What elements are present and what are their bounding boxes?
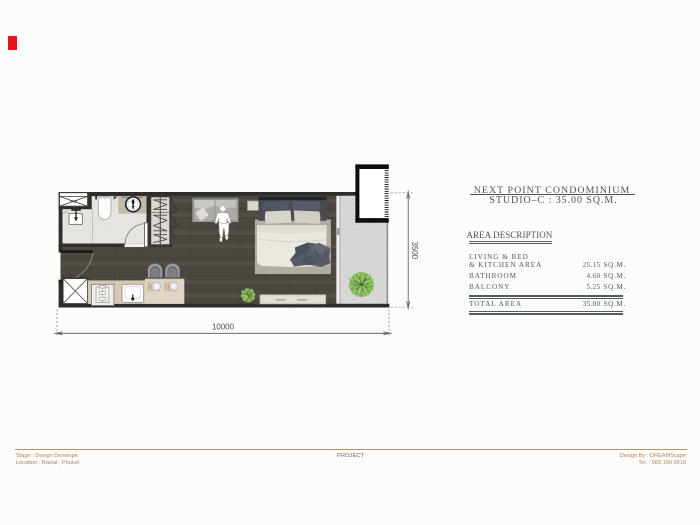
svg-text:10x90: 10x90 (69, 199, 78, 203)
svg-text:10000: 10000 (212, 323, 235, 332)
svg-text:3500: 3500 (410, 242, 419, 260)
svg-text:0'RL: 0'RL (63, 211, 69, 215)
